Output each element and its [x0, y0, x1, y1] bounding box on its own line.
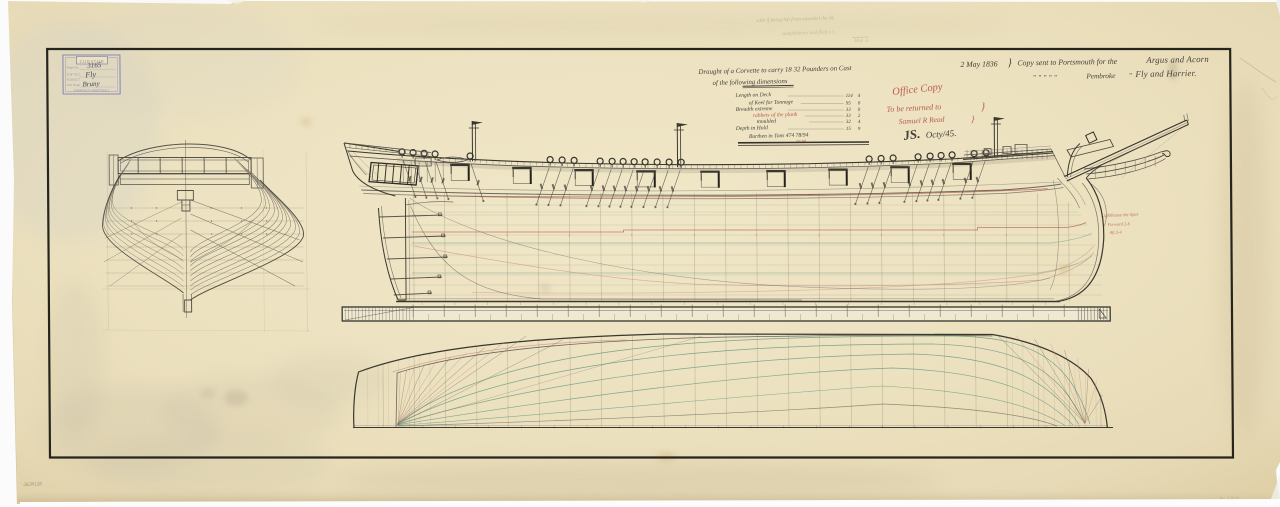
svg-text:Bruny: Bruny: [82, 80, 100, 89]
svg-text:}: }: [981, 101, 986, 113]
svg-text:33: 33: [846, 114, 852, 119]
svg-text:Forward 2-6: Forward 2-6: [1106, 221, 1130, 227]
svg-text:262N128: 262N128: [23, 482, 42, 488]
svg-text:2 May 1836: 2 May 1836: [960, 59, 998, 69]
svg-text:Length on Deck: Length on Deck: [735, 92, 772, 99]
svg-text:SUBJECT: SUBJECT: [67, 78, 81, 82]
svg-text:Fly: Fly: [84, 70, 97, 80]
svg-text:}: }: [971, 114, 975, 124]
svg-text:114: 114: [846, 94, 854, 99]
svg-text:Depth in Hold: Depth in Hold: [735, 125, 768, 132]
svg-text:}: }: [1007, 57, 1012, 69]
svg-text:”: ”: [1129, 73, 1133, 80]
svg-text:Port Regn: Port Regn: [67, 83, 81, 87]
svg-text:Regn No: Regn No: [66, 66, 78, 70]
svg-text:15: 15: [846, 127, 852, 132]
svg-text:Aft 2-4: Aft 2-4: [1108, 230, 1122, 235]
svg-text:ADMIRALTY WHITEHALL: ADMIRALTY WHITEHALL: [74, 89, 110, 93]
svg-text:32: 32: [846, 120, 852, 125]
svg-text:JS.: JS.: [901, 126, 921, 143]
svg-text:Octy/45.: Octy/45.: [925, 128, 956, 140]
svg-text:95: 95: [846, 102, 852, 107]
svg-text:Fly and Harrier.: Fly and Harrier.: [1134, 68, 1196, 79]
svg-text:Argus and Acorn: Argus and Acorn: [1145, 54, 1209, 65]
svg-text:3165: 3165: [86, 61, 102, 70]
svg-text:33: 33: [846, 108, 852, 113]
svg-text:SHIP SEC: SHIP SEC: [67, 73, 82, 77]
svg-text:16 4 - 3: 16 4 - 3: [854, 38, 869, 43]
svg-text:” ” ” ” ”: ” ” ” ” ”: [1033, 75, 1058, 82]
svg-text:Pembroke: Pembroke: [1085, 72, 1116, 81]
svg-text:moulded: moulded: [757, 118, 777, 125]
svg-text:Copy sent to Portsmouth for th: Copy sent to Portsmouth for the: [1017, 57, 1118, 68]
